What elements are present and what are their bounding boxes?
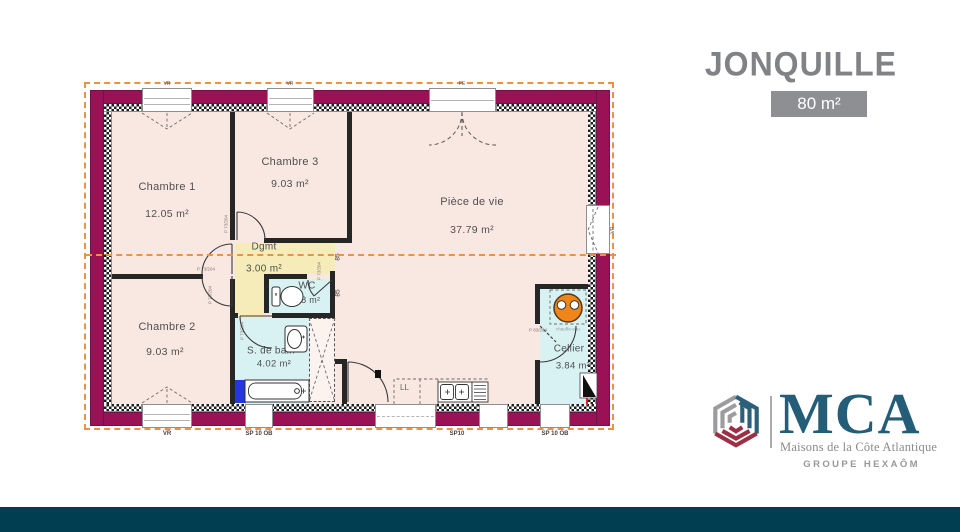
bathtub-icon (245, 380, 309, 402)
door-sdb (240, 316, 272, 348)
area-badge: 80 m² (771, 91, 867, 117)
window-swing-bottom (142, 387, 192, 403)
door-chambre2 (202, 276, 232, 306)
brand-name: MCA (779, 385, 921, 443)
electrical-panel-icon (580, 373, 597, 405)
water-heater-icon (554, 294, 582, 322)
logo-divider (770, 396, 772, 448)
window-swing-right (588, 207, 598, 253)
brand-group: GROUPE HEXAÔM (803, 459, 920, 470)
window-swing-top1 (142, 113, 192, 129)
door-chambre1 (202, 244, 232, 274)
section-line (86, 254, 616, 256)
door-cellier-leaf (540, 326, 556, 342)
plan-symbols (86, 84, 616, 432)
brand-tagline: Maisons de la Côte Atlantique (780, 440, 937, 455)
bathroom-sink-icon (285, 326, 307, 352)
page-title: JONQUILLE (705, 44, 897, 84)
wall-post (375, 370, 381, 378)
entry-door-swing (429, 112, 496, 145)
closet-cross (309, 318, 335, 402)
door-chambre3 (237, 212, 265, 240)
window-swing-top2 (267, 113, 314, 129)
cube-red-arm (715, 427, 756, 445)
door-sejour (348, 362, 388, 402)
kitchen-sink-icon (438, 382, 488, 402)
footer-bar (0, 507, 960, 532)
mca-cube-logo (709, 391, 763, 451)
toilet-icon (272, 287, 303, 307)
floor-plan: Chambre 1 12.05 m² Chambre 3 9.03 m² Piè… (84, 82, 614, 430)
door-wc (308, 280, 332, 296)
